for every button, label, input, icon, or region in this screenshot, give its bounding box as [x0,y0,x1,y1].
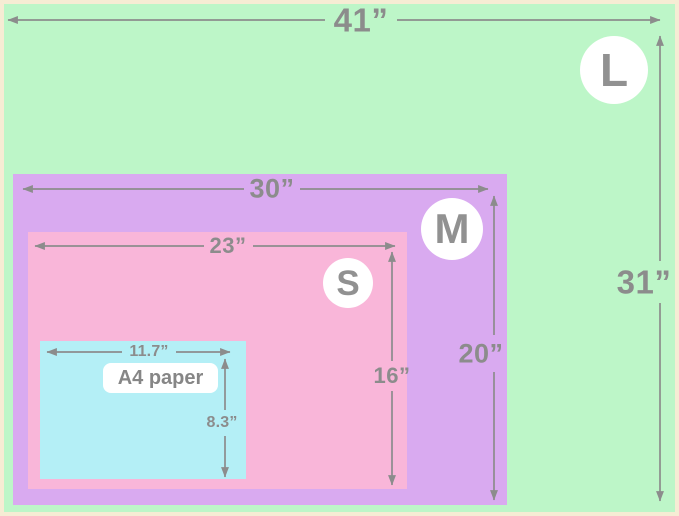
size-s-badge-letter: S [336,266,359,301]
size-m-badge-letter: M [435,208,470,250]
dim-label-m-height: 20” [458,341,503,368]
size-l-badge-letter: L [600,47,628,93]
dim-label-l-height: 31” [617,266,672,299]
size-l-badge: L [580,36,648,104]
dim-label-a4-width: 11.7” [129,344,168,360]
size-m-badge: M [421,198,483,260]
a4-paper-tag: A4 paper [103,363,218,393]
size-s-badge: S [323,258,373,308]
dim-label-s-width: 23” [210,235,247,257]
dim-label-m-width: 30” [249,176,294,203]
dim-label-a4-height: 8.3” [206,415,237,431]
a4-paper-tag-label: A4 paper [118,367,204,390]
dimension-arrows [0,0,679,516]
size-comparison-diagram: 41” 31” 30” 20” 23” 16” 11.7” 8.3” L M S… [0,0,679,516]
dim-label-s-height: 16” [374,365,411,387]
dim-label-l-width: 41” [334,4,389,37]
